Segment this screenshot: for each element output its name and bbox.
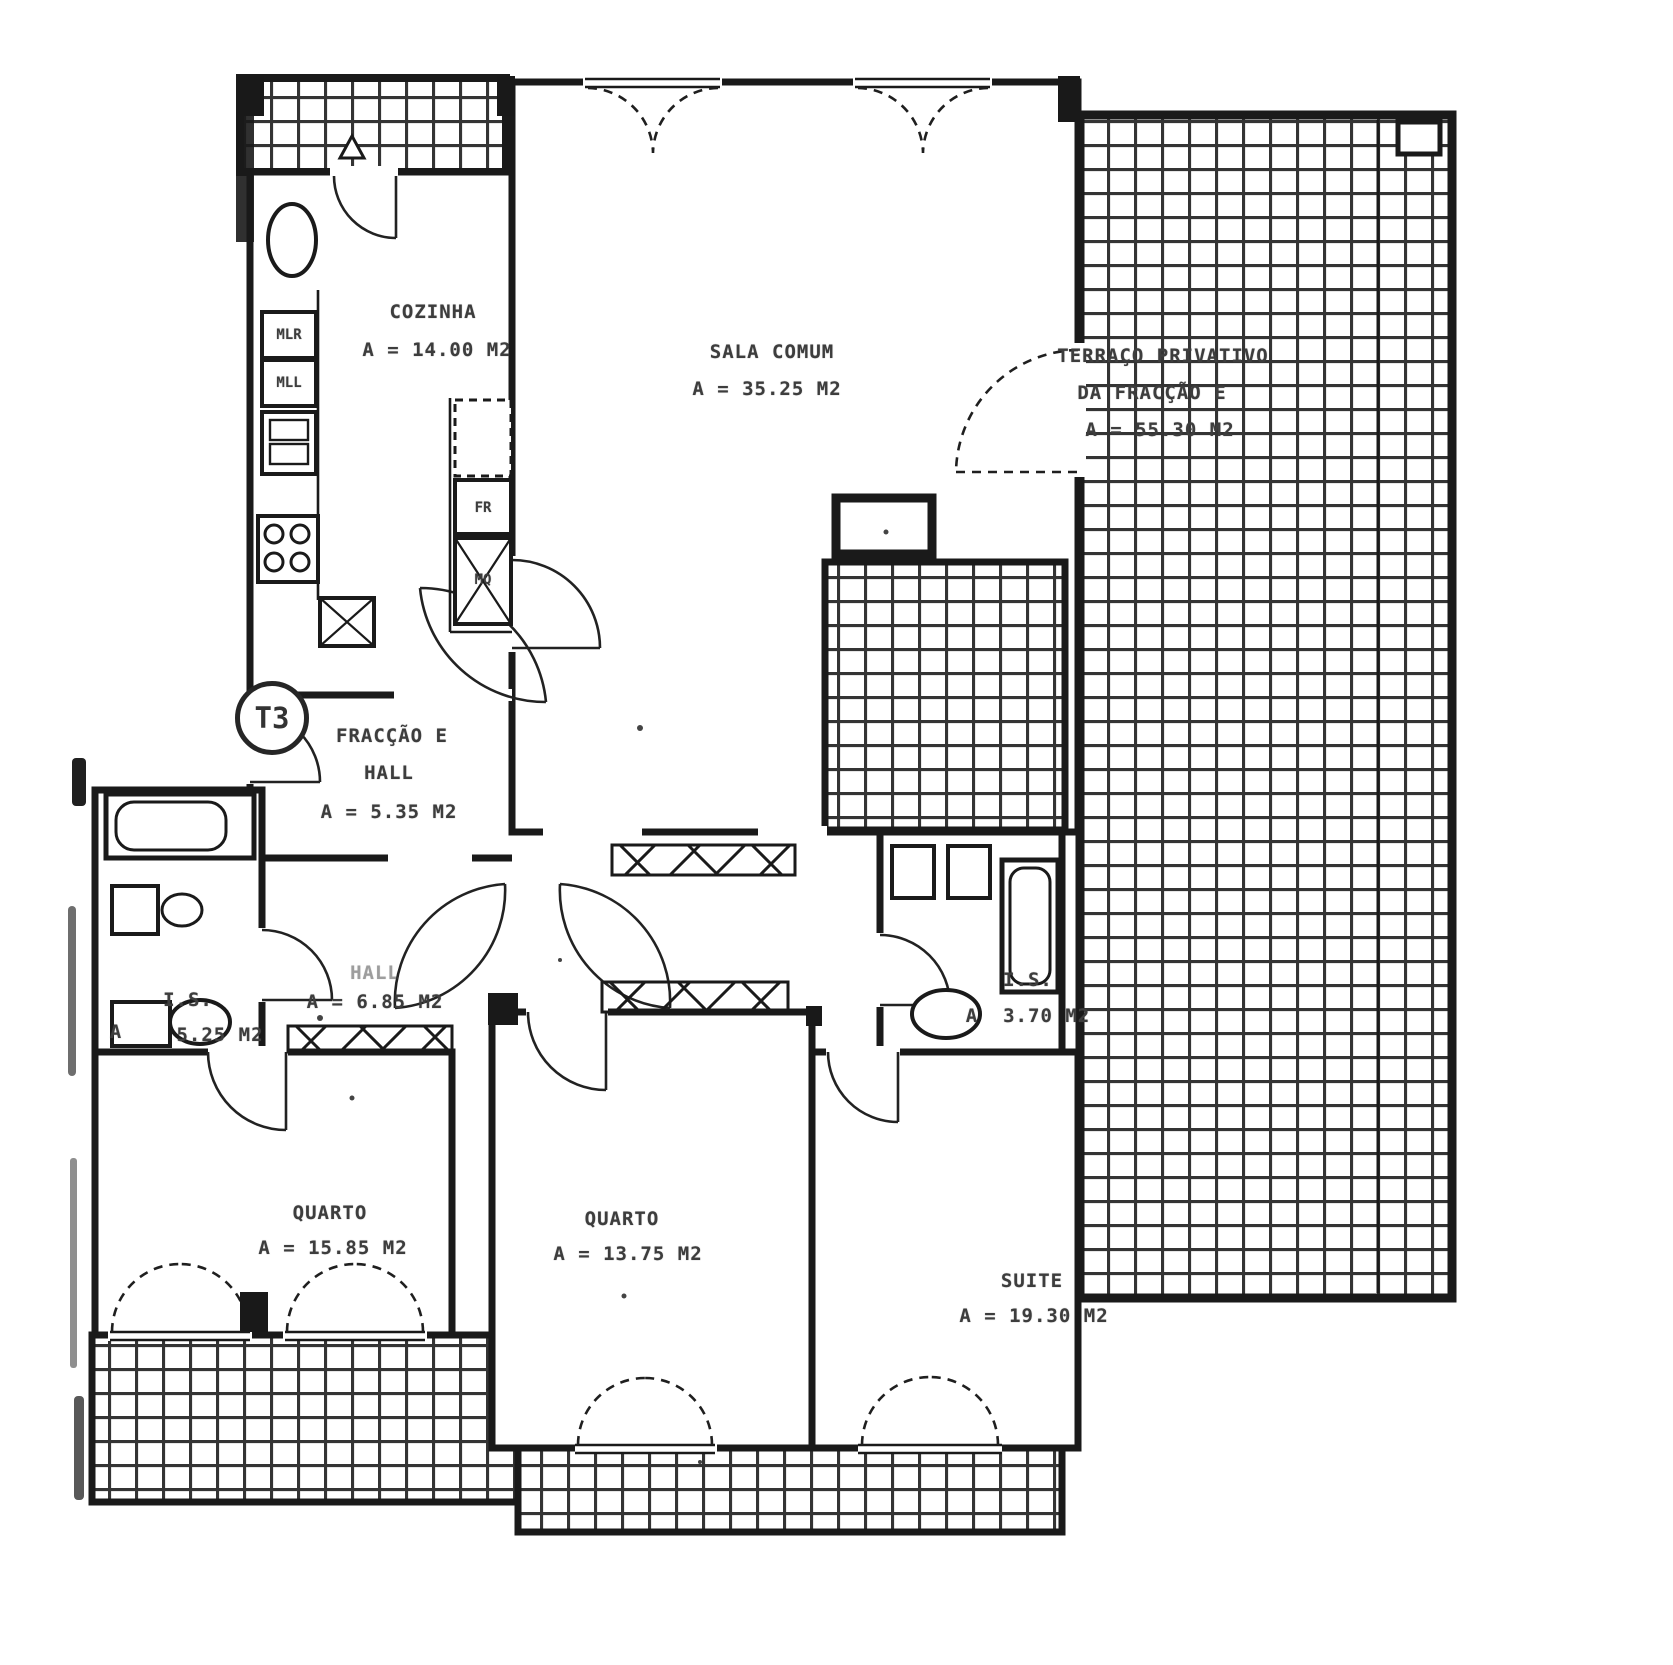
room-area-suite: A = 19.30 M2 bbox=[959, 1305, 1108, 1327]
room-label-quarto-middle: QUARTO bbox=[585, 1208, 660, 1230]
terrace-right-tiles bbox=[1080, 115, 1452, 1298]
room-label-sala-comum: SALA COMUM bbox=[710, 341, 834, 363]
balcony-bottom-tiles bbox=[518, 1448, 1062, 1532]
room-label-cozinha: COZINHA bbox=[389, 301, 476, 323]
balcony-left-tiles bbox=[92, 1335, 518, 1502]
room-area-is-right: A 3.70 M2 bbox=[966, 1005, 1090, 1027]
unit-type-badge: T3 bbox=[235, 681, 309, 755]
room-area-hall: A = 6.85 M2 bbox=[307, 991, 444, 1013]
room-label-is-right: I.S. bbox=[1003, 969, 1053, 991]
appliance-label-fr: FR bbox=[475, 500, 492, 516]
room-label-is-left: I.S. bbox=[163, 989, 213, 1011]
room-label-hall: HALL bbox=[350, 962, 400, 984]
room-label-fraccao-hall: HALL bbox=[364, 762, 414, 784]
appliance-label-mq: MQ bbox=[475, 572, 492, 588]
room-area-sala-comum: A = 35.25 M2 bbox=[692, 378, 841, 400]
room-area-terraco: A = 55.30 M2 bbox=[1085, 419, 1234, 441]
room-label-terraco: TERRAÇO PRIVATIVO bbox=[1057, 345, 1268, 367]
room-label-suite: SUITE bbox=[1001, 1270, 1063, 1292]
floor-plan-drawing bbox=[0, 0, 1673, 1665]
room-label-terraco-2: DA FRACÇÃO E bbox=[1077, 382, 1226, 404]
room-area-cozinha: A = 14.00 M2 bbox=[362, 339, 511, 361]
floor-plan-page: T3 COZINHA A = 14.00 M2 SALA COMUM A = 3… bbox=[0, 0, 1673, 1665]
room-label-quarto-left: QUARTO bbox=[293, 1202, 368, 1224]
appliance-label-mll: MLL bbox=[276, 375, 301, 391]
room-area-is-left-prefix: A bbox=[110, 1021, 122, 1043]
room-area-quarto-left: A = 15.85 M2 bbox=[258, 1237, 407, 1259]
appliance-label-mlr: MLR bbox=[276, 327, 301, 343]
room-area-quarto-middle: A = 13.75 M2 bbox=[553, 1243, 702, 1265]
kitchen-balcony-tiles bbox=[240, 78, 506, 172]
room-area-is-left: 5.25 M2 bbox=[176, 1024, 263, 1046]
room-label-fraccao: FRACÇÃO E bbox=[336, 725, 448, 747]
room-area-fraccao: A = 5.35 M2 bbox=[321, 801, 458, 823]
